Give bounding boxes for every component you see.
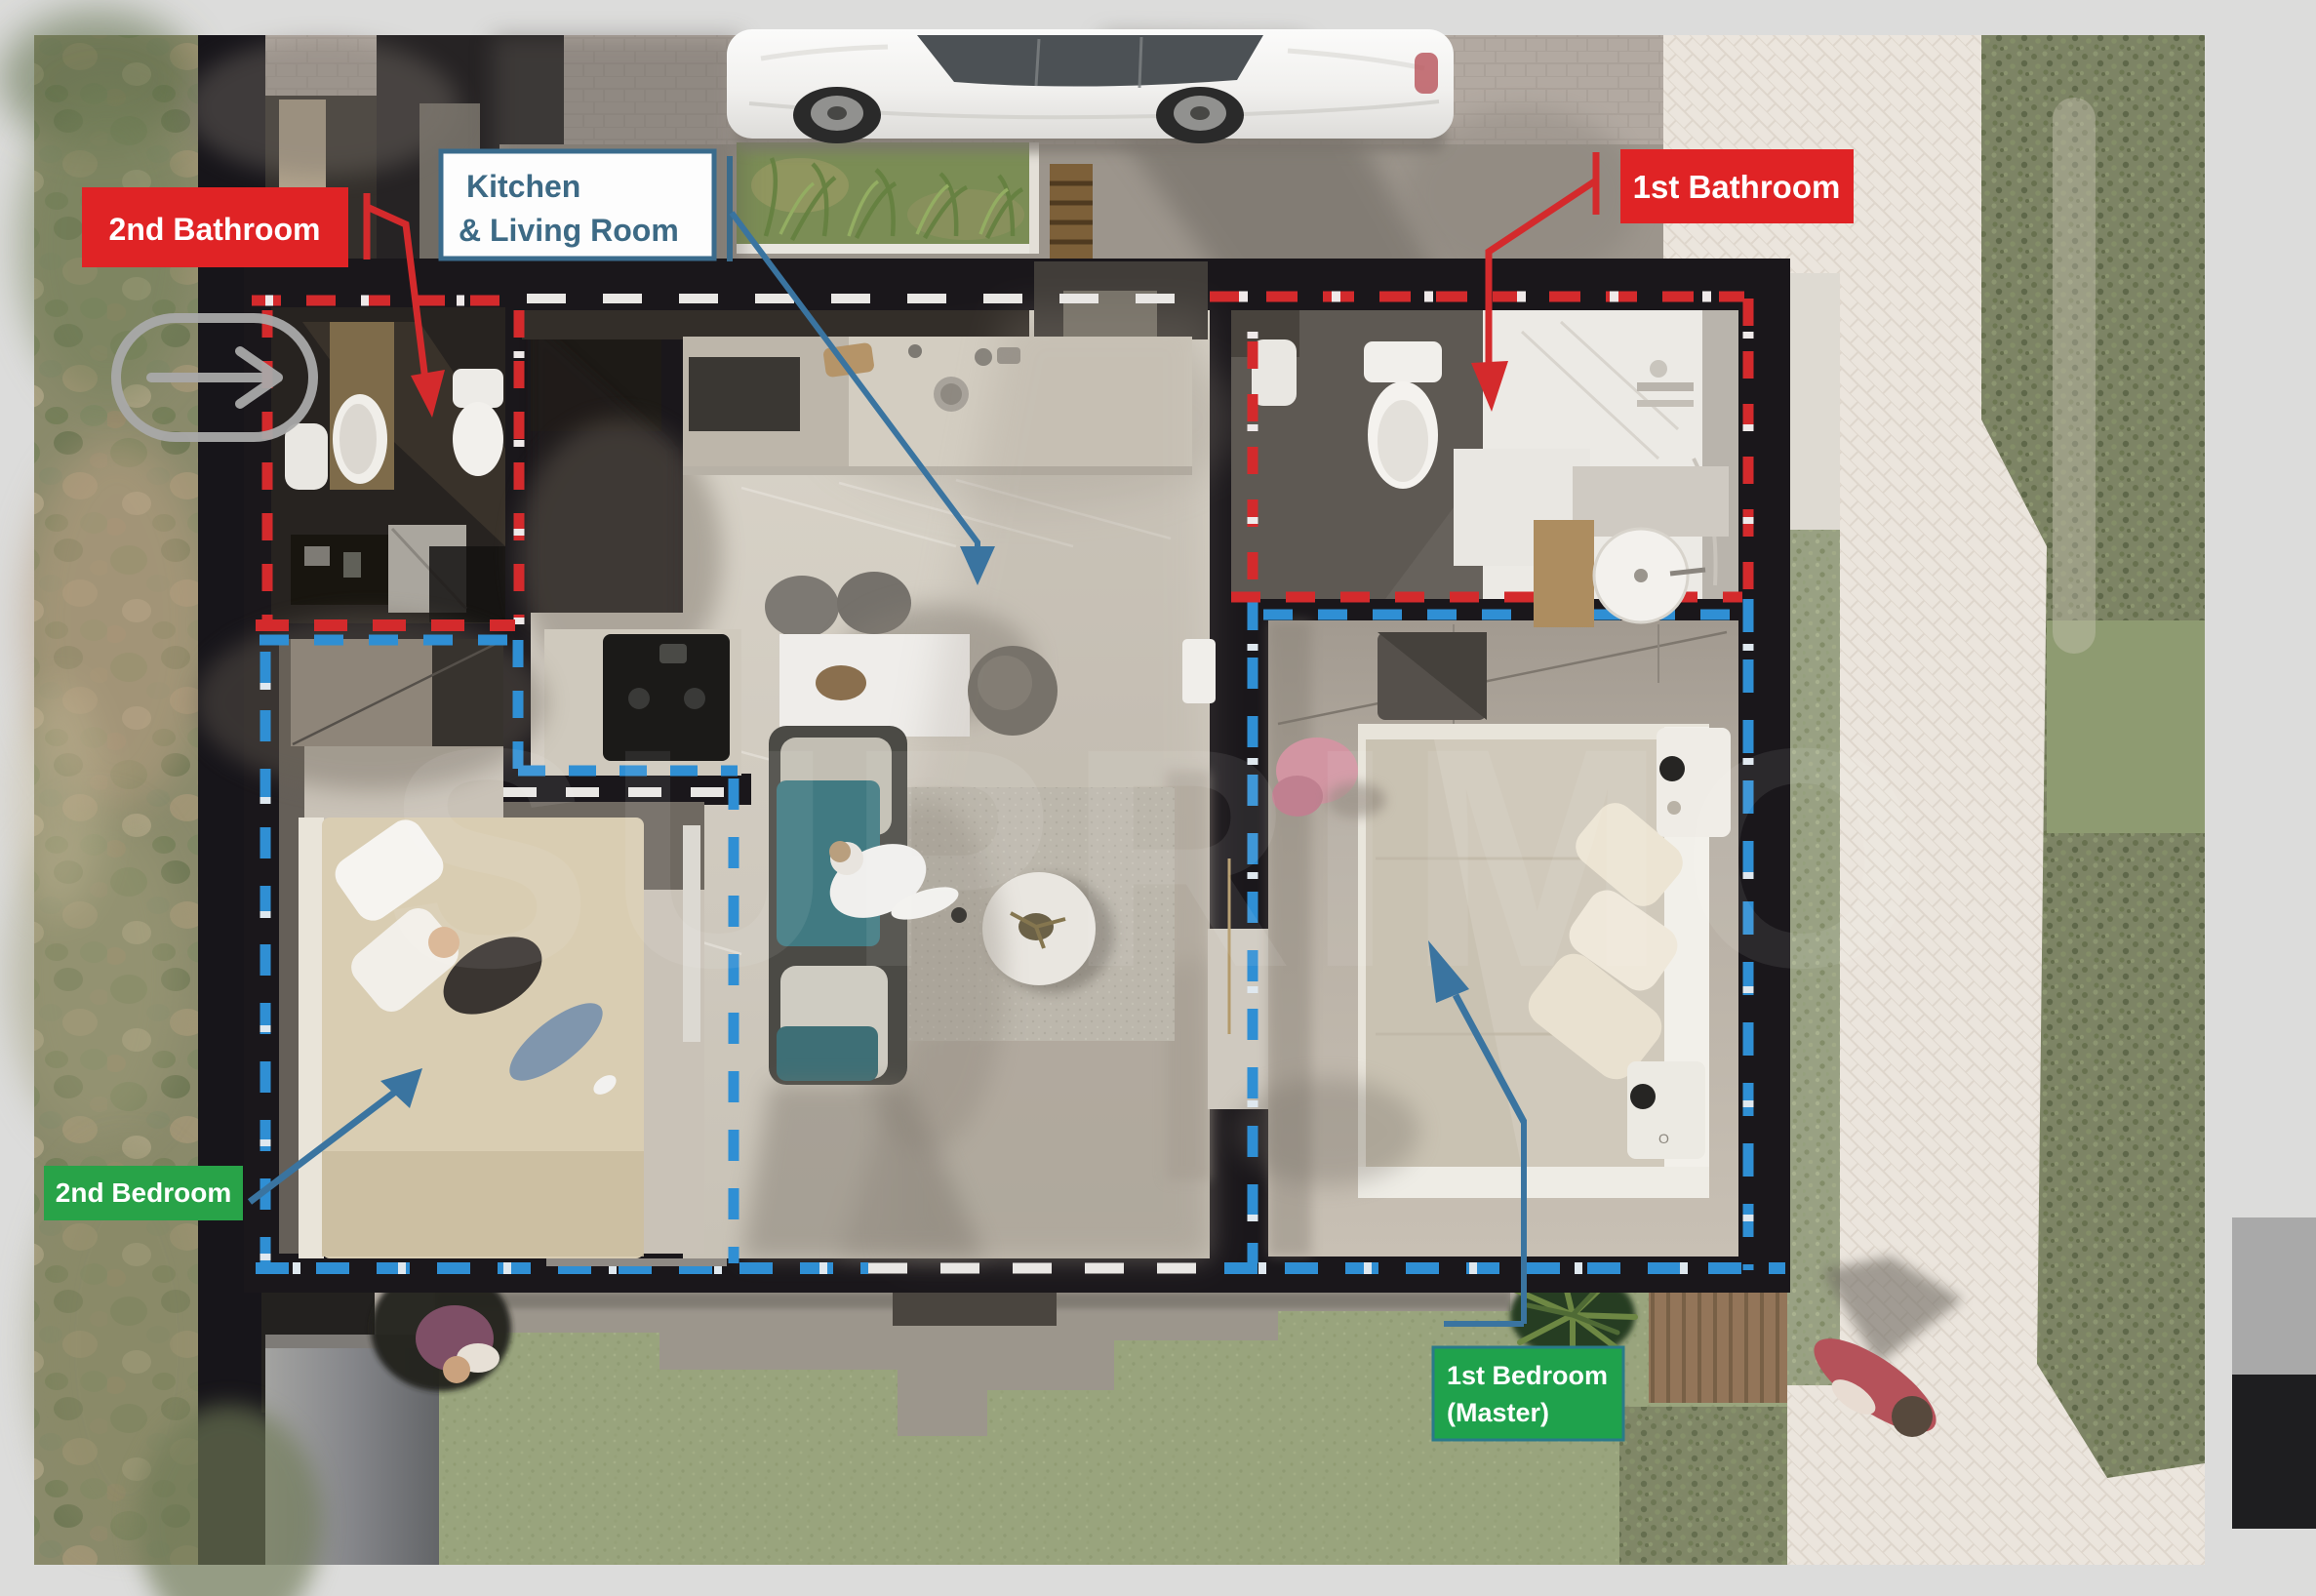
svg-text:(Master): (Master) — [1447, 1398, 1549, 1427]
svg-text:O: O — [1658, 1131, 1669, 1146]
svg-text:2nd Bathroom: 2nd Bathroom — [109, 212, 321, 247]
svg-text:& Living Room: & Living Room — [459, 213, 679, 248]
svg-text:SUPRIMO: SUPRIMO — [384, 683, 1937, 1032]
svg-text:1st Bedroom: 1st Bedroom — [1447, 1361, 1608, 1390]
svg-text:Kitchen: Kitchen — [466, 169, 580, 204]
svg-text:1st Bathroom: 1st Bathroom — [1633, 169, 1841, 205]
svg-text:2nd Bedroom: 2nd Bedroom — [56, 1177, 231, 1208]
